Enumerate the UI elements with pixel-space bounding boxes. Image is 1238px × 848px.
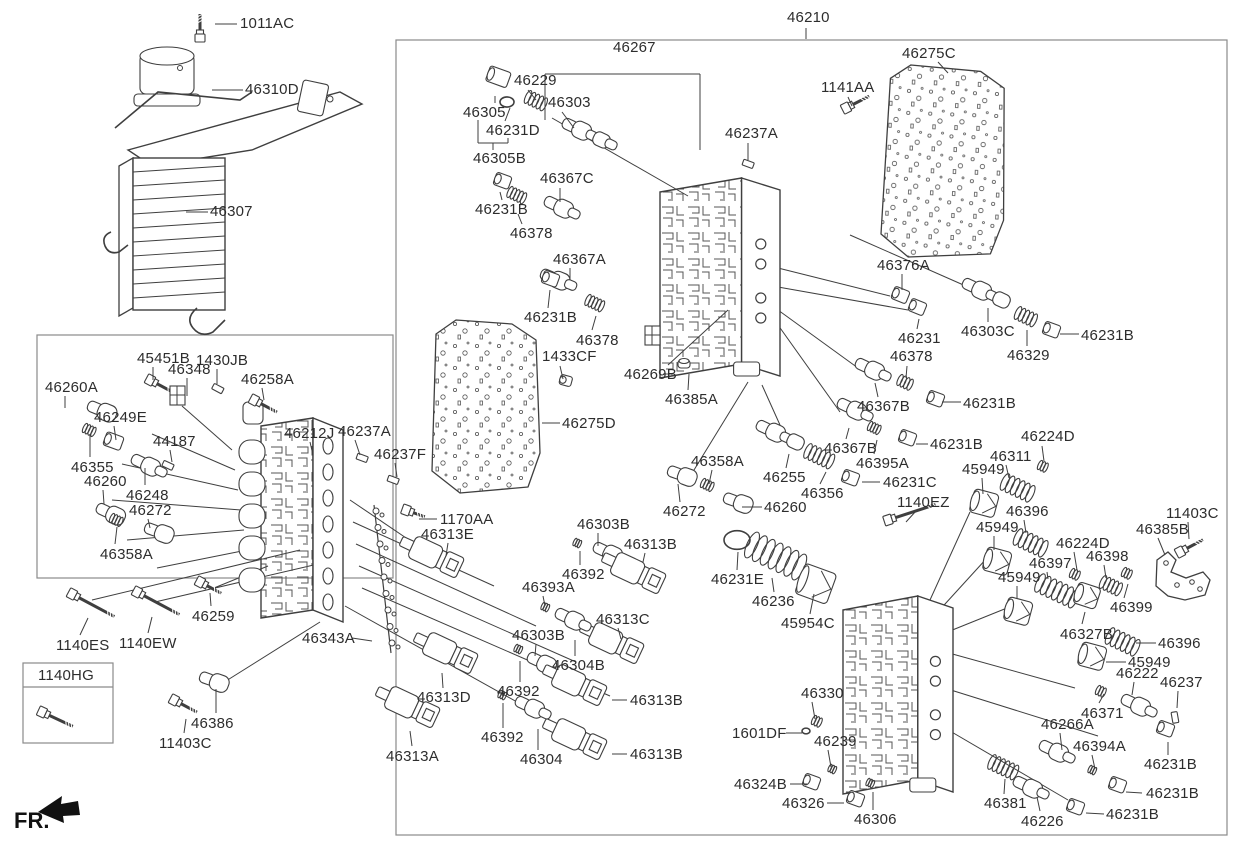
valve-46260-c (721, 489, 755, 515)
spring-46378-3 (896, 374, 915, 391)
spring-46395a (866, 421, 882, 436)
bolt-1140ew (131, 586, 182, 619)
bolt-11403c-l (168, 694, 199, 717)
solenoid-46313b-1 (598, 546, 667, 595)
spring-46378-top (506, 186, 528, 205)
plug-1433cf (559, 374, 573, 387)
middle-valve-body-46212j (239, 402, 343, 622)
pin-46237a-m (356, 453, 368, 462)
grommet-46385a (678, 359, 690, 369)
oring-1601df (802, 728, 810, 734)
spring-46399 (1120, 567, 1133, 580)
pin-46237a-top (742, 159, 754, 168)
bolt-1011ac (195, 14, 205, 42)
spring-46396-1 (1011, 527, 1050, 558)
spring-46224d-1 (1036, 460, 1049, 473)
diagram-line-art (0, 0, 1238, 848)
spring-46393a (540, 602, 550, 613)
solenoid-46313b-3 (539, 712, 608, 761)
spring-46392-1 (572, 538, 582, 549)
solenoid-46313e (396, 530, 465, 579)
plug-46231b-r3 (898, 429, 918, 447)
reservoir-cap (134, 47, 200, 106)
part-shapes (36, 14, 1210, 816)
plug-46231b-top (493, 172, 513, 190)
valve-46260-l (93, 499, 127, 527)
spring-46236 (742, 530, 810, 582)
piston-45949-2 (981, 546, 1013, 576)
bolt-1140ez (883, 500, 937, 526)
bushing-46305 (485, 65, 511, 88)
spring-46394a (1087, 765, 1097, 776)
bolt-1140es (66, 588, 117, 621)
piston-45949-4 (1076, 641, 1108, 671)
spring-46392-2 (513, 644, 523, 655)
piston-45954c (794, 563, 837, 605)
separator-plate-46275d (432, 320, 540, 493)
parts-diagram-valve-body: 1011AC46310D4630746210462674622946303463… (0, 0, 1238, 848)
oring-46231d (500, 97, 514, 107)
pin-1430jb (212, 383, 225, 393)
filter-46269b (645, 326, 660, 345)
pin-46237f (387, 475, 399, 484)
valve-46260a (85, 397, 119, 424)
separator-plate-46275c (880, 64, 1009, 260)
sensor-46386 (197, 668, 231, 694)
spring-46358a-c (699, 478, 715, 493)
spring-46398 (1098, 575, 1124, 597)
piston-45949-3 (1002, 596, 1034, 626)
plug-46231 (907, 298, 927, 316)
valve-46367b-2 (834, 394, 876, 425)
valve-46266a (1036, 736, 1078, 767)
plug-46231b-b2 (1108, 776, 1128, 794)
solenoid-46313d (410, 626, 479, 675)
plug-46231b-b3 (1066, 798, 1086, 816)
pin-46237-b (1171, 711, 1179, 723)
plug-46231c (841, 469, 861, 487)
valve-46272-c (665, 462, 699, 488)
valve-46226 (1010, 772, 1052, 803)
spring-46381 (986, 754, 1020, 781)
spring-46239 (827, 764, 837, 775)
solenoid-46313a (372, 680, 441, 729)
solenoid-46313b-2 (539, 658, 608, 707)
valve-46255 (753, 416, 806, 453)
piston-45949-1 (968, 488, 1000, 518)
sleeve-46324b (802, 773, 822, 791)
bolt-11403c-r (1174, 535, 1205, 558)
clip-46348 (170, 386, 185, 405)
oil-filter-46307 (104, 158, 225, 334)
valve-46303c (959, 274, 1012, 311)
valve-46222 (1118, 690, 1160, 721)
bolt-1140hg (36, 706, 75, 731)
spring-46311 (998, 472, 1037, 503)
plug-46376a (890, 286, 910, 304)
spring-46330 (810, 715, 823, 728)
lower-valve-body (843, 596, 953, 794)
spring-46224d-2 (1068, 568, 1081, 581)
spring-46329 (1013, 306, 1039, 328)
bushing-46249e (102, 431, 124, 450)
bolt-1141aa (840, 92, 871, 115)
piston-46327b (1072, 581, 1102, 609)
bolt-1140hg-box (23, 663, 113, 743)
upper-valve-body (660, 178, 780, 378)
spring-46356 (802, 443, 836, 470)
spring-46396-2 (1103, 626, 1142, 657)
spring-46355 (81, 423, 97, 438)
valve-46367c (541, 192, 583, 223)
valve-46367b-1 (852, 354, 894, 385)
plug-46231b-r1 (1042, 321, 1062, 339)
bracket-46385b (1156, 552, 1210, 600)
plug-46231b-r2 (926, 390, 946, 408)
spring-46378-2 (584, 294, 606, 313)
valve-46272-l (142, 519, 176, 545)
fr-label: FR. (14, 808, 49, 834)
valve-46304b (552, 604, 594, 635)
spring-46371 (1094, 685, 1107, 698)
